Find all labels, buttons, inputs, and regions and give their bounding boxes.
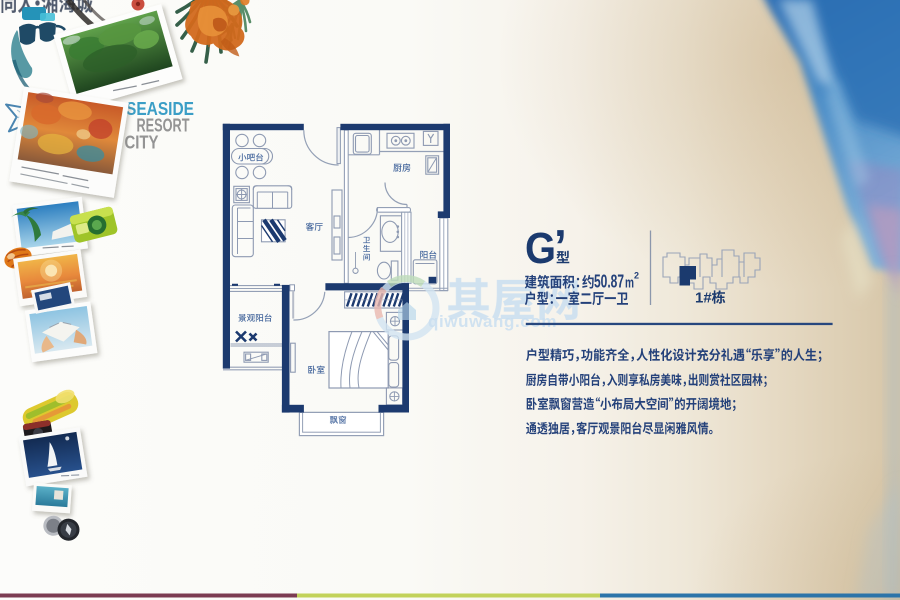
svg-text:1#: 1# — [695, 290, 712, 307]
svg-text:’: ’ — [554, 220, 567, 272]
svg-text:qiwuwang.com: qiwuwang.com — [428, 312, 557, 331]
svg-text:m: m — [625, 276, 634, 292]
svg-text:CITY: CITY — [125, 132, 160, 153]
svg-text:G: G — [525, 224, 556, 273]
svg-text:50.87: 50.87 — [594, 272, 624, 292]
svg-text:2: 2 — [634, 271, 639, 281]
